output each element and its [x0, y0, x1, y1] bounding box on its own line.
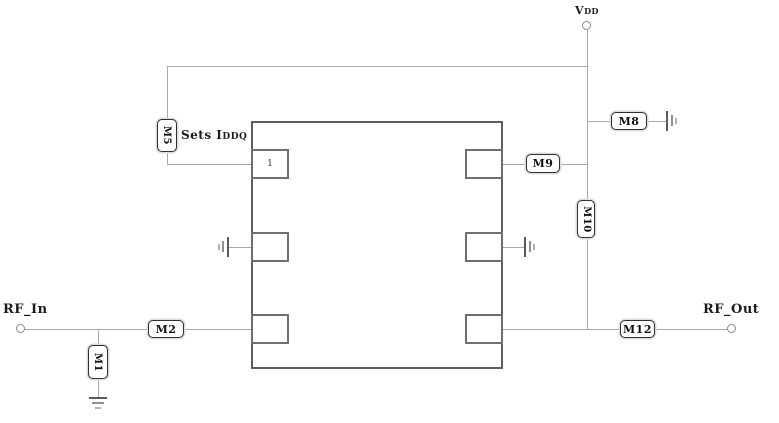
- component-m5-label: M5: [162, 126, 173, 145]
- wire-pad-to-ground-right: [503, 247, 524, 248]
- wire-m2-to-pad: [184, 329, 251, 330]
- wire-pad-to-m9: [503, 164, 526, 165]
- wire-rail-to-m8: [587, 121, 611, 122]
- component-m9: M9: [526, 154, 560, 173]
- sets-iddq-sub: DDQ: [222, 132, 247, 142]
- component-m1-label: M1: [93, 352, 104, 371]
- wire-m5-top: [167, 66, 168, 119]
- sets-iddq-annotation: Sets IDDQ: [181, 128, 247, 142]
- vdd-label: VDD: [569, 4, 605, 17]
- ic-pad-right-top: [465, 149, 503, 179]
- ic-pad-right-middle: [465, 232, 503, 262]
- terminal-rf-in: [16, 324, 25, 333]
- component-m10-label: M10: [581, 206, 592, 233]
- component-m10: M10: [577, 200, 595, 238]
- terminal-rf-out: [727, 324, 736, 333]
- ic-pad-right-bottom: [465, 314, 503, 344]
- vdd-label-sub: DD: [584, 6, 599, 16]
- component-m9-label: M9: [533, 157, 554, 170]
- wire-m1-top: [98, 329, 99, 345]
- ic-pad-left-bottom: [251, 314, 289, 344]
- terminal-vdd: [582, 21, 591, 30]
- component-m1: M1: [88, 345, 108, 379]
- ic-pad-left-top: 1: [251, 149, 289, 179]
- component-m2: M2: [148, 320, 184, 338]
- wire-vdd-rail: [587, 30, 588, 329]
- wire-m8-to-ground: [647, 121, 666, 122]
- wire-rfin-to-m2: [25, 329, 148, 330]
- component-m12: M12: [620, 320, 655, 338]
- wire-pad1-in: [167, 164, 251, 165]
- wire-m1-to-ground: [98, 379, 99, 397]
- pad-number-label: 1: [267, 159, 273, 169]
- wire-top-feedback: [167, 66, 587, 67]
- wire-m5-bottom: [167, 152, 168, 164]
- rf-out-label: RF_Out: [703, 302, 759, 317]
- wire-m12-to-rfout: [655, 329, 727, 330]
- ic-pad-left-middle: [251, 232, 289, 262]
- sets-iddq-main: Sets I: [181, 128, 222, 142]
- vdd-label-main: V: [575, 4, 584, 17]
- component-m8: M8: [611, 112, 647, 130]
- component-m5: M5: [157, 119, 177, 152]
- wire-m9-to-rail: [560, 164, 587, 165]
- wire-pad-to-m12: [503, 329, 620, 330]
- rf-in-label: RF_In: [3, 302, 48, 317]
- component-m8-label: M8: [619, 115, 640, 128]
- component-m12-label: M12: [623, 323, 652, 336]
- wire-pad-to-ground-left: [229, 247, 251, 248]
- component-m2-label: M2: [156, 323, 177, 336]
- schematic-canvas: 1 M5 M2 M1 M8 M9 M10 M12: [0, 0, 779, 423]
